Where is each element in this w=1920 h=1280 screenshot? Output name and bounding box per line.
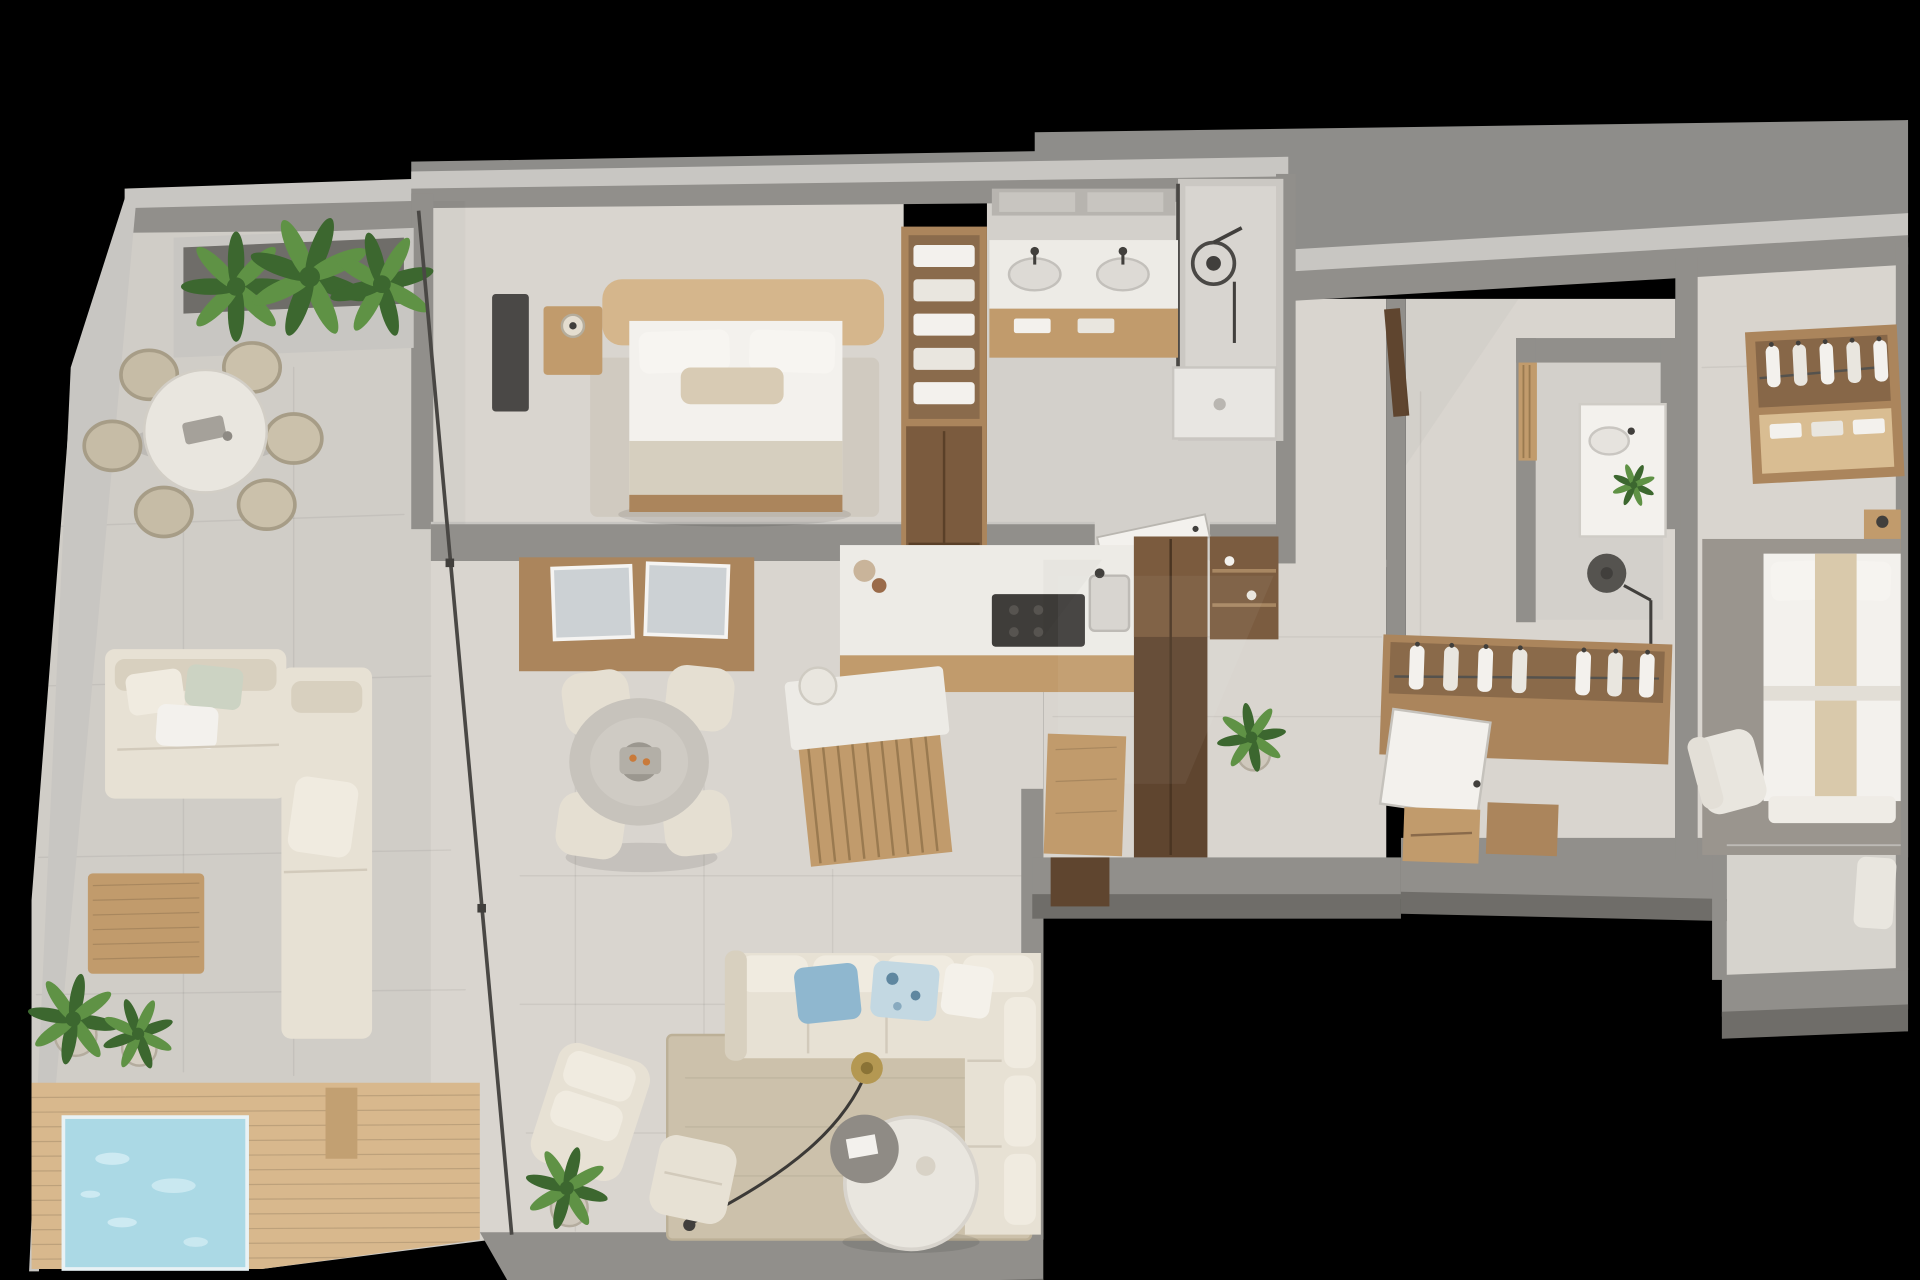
slat-wall [1519, 363, 1537, 461]
patterned-pillow [869, 960, 940, 1022]
deck-step [326, 1088, 358, 1159]
entry-step [1051, 857, 1110, 906]
open-wardrobe [1745, 324, 1905, 484]
corridor-floor [1288, 299, 1386, 567]
floor-plan-render [0, 0, 1920, 1280]
accent-pillow [681, 367, 784, 404]
vanity-2 [1580, 404, 1666, 536]
pouf [646, 1132, 739, 1227]
artwork-left [552, 566, 633, 640]
artwork-right [645, 563, 728, 637]
entry-door [1044, 734, 1127, 857]
blue-pillow [793, 962, 862, 1025]
bed-runner [1815, 554, 1857, 801]
bar-stool [800, 668, 837, 705]
deck-and-pool [32, 1083, 480, 1269]
balcony-lounger [1853, 856, 1897, 930]
bed-bench [1768, 796, 1895, 823]
render-canvas [0, 0, 1920, 1280]
media-unit [492, 294, 529, 412]
drawer-chest [1486, 802, 1559, 856]
closet-door [1380, 709, 1490, 817]
lamp-2 [1876, 516, 1888, 528]
decor-vase [853, 560, 875, 582]
outdoor-coffee-table [88, 873, 204, 973]
